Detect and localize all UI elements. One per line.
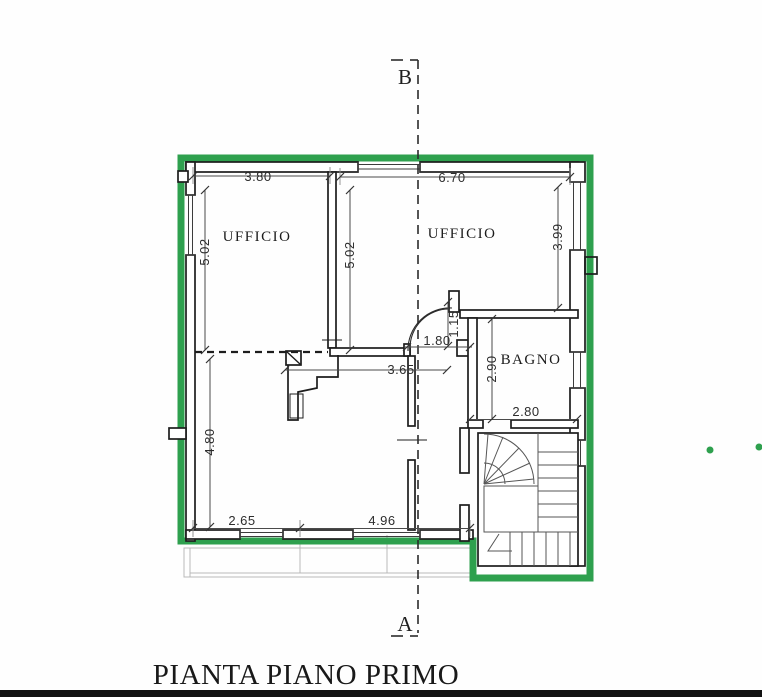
floor-plan-svg: B A: [0, 0, 762, 697]
room-label-bathroom: BAGNO: [501, 352, 562, 368]
staircase: [478, 433, 578, 566]
dim-office-left-height-a: 5.02: [197, 238, 212, 265]
room-label-office-right: UFFICIO: [428, 226, 497, 242]
plan-title: PIANTA PIANO PRIMO: [153, 659, 459, 691]
dim-lower-room-height: 4.80: [202, 428, 217, 455]
section-marker-a: A: [397, 612, 413, 636]
dim-hall-width: 3.65: [387, 362, 414, 377]
dim-bottom-width-right: 4.96: [368, 513, 395, 528]
floor-plan-scan: B A: [0, 0, 762, 697]
room-label-office-left: UFFICIO: [223, 229, 292, 245]
dim-office-left-height-b: 5.02: [342, 241, 357, 268]
dim-bottom-width-left: 2.65: [228, 513, 255, 528]
dim-office-right-height: 3.99: [550, 223, 565, 250]
green-dots: [707, 444, 762, 454]
section-marker-b: B: [398, 65, 412, 89]
dim-bathroom-width: 2.80: [512, 404, 539, 419]
dim-door-width: 1.80: [423, 333, 450, 348]
dim-top-left-width: 3.80: [244, 169, 271, 184]
room-labels: UFFICIO UFFICIO BAGNO: [223, 226, 562, 368]
dim-bathroom-height: 2.90: [484, 355, 499, 382]
dim-top-right-width: 6.70: [438, 170, 465, 185]
bottom-frame-line: [0, 690, 762, 697]
